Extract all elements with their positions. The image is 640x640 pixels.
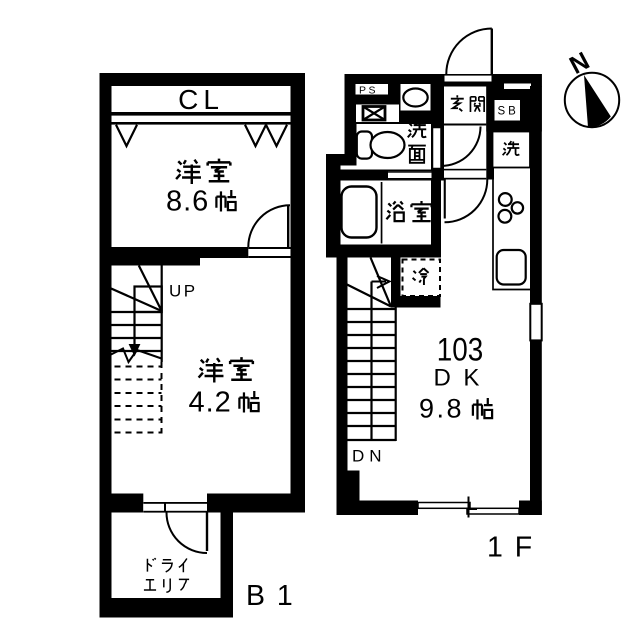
svg-text:4.2: 4.2 [189, 387, 232, 419]
svg-text:SB: SB [498, 106, 519, 118]
svg-text:B 1: B 1 [246, 580, 295, 612]
svg-text:CL: CL [178, 84, 224, 115]
svg-text:DN: DN [352, 447, 387, 466]
svg-text:1 F: 1 F [487, 532, 534, 564]
svg-text:9.8: 9.8 [419, 394, 464, 424]
svg-text:UP: UP [169, 282, 198, 301]
svg-text:DK: DK [434, 365, 492, 392]
svg-text:8.6: 8.6 [166, 186, 209, 218]
svg-text:PS: PS [359, 84, 378, 96]
svg-text:N: N [565, 47, 594, 80]
svg-text:103: 103 [437, 333, 483, 368]
